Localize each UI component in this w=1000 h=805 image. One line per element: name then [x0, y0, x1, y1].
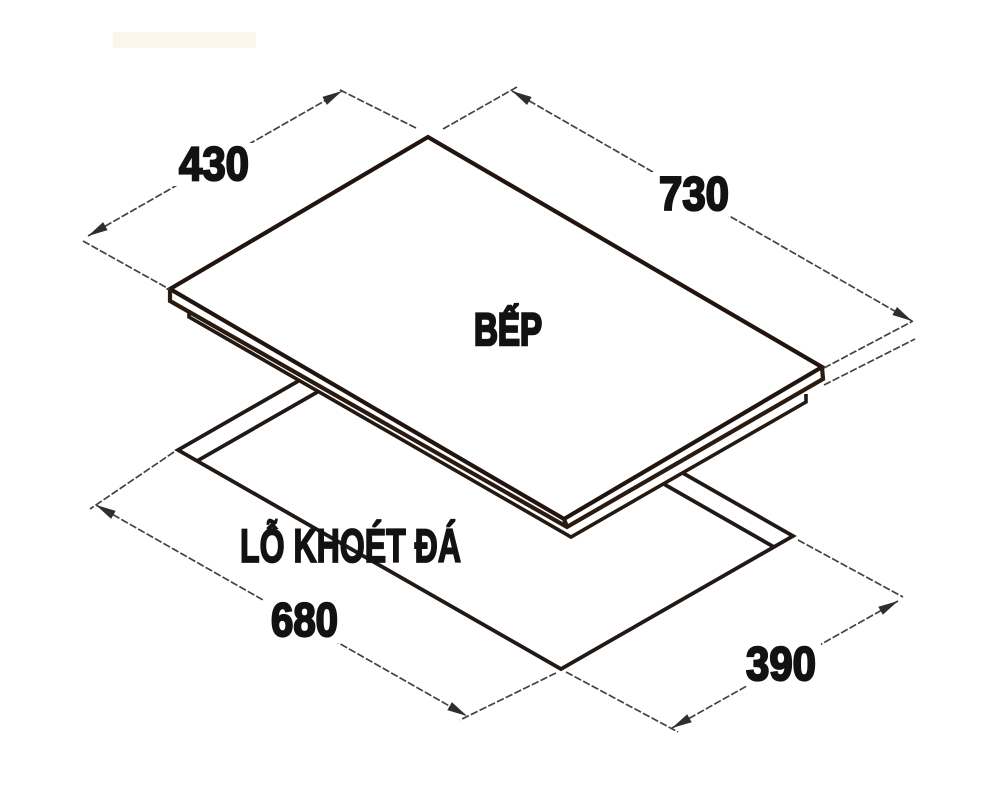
svg-text:390: 390 — [746, 637, 816, 690]
svg-text:730: 730 — [659, 167, 729, 220]
svg-text:BẾP: BẾP — [474, 304, 542, 355]
svg-text:430: 430 — [179, 137, 249, 190]
svg-text:680: 680 — [271, 593, 338, 646]
svg-text:LỖ KHOÉT ĐÁ: LỖ KHOÉT ĐÁ — [240, 519, 461, 572]
